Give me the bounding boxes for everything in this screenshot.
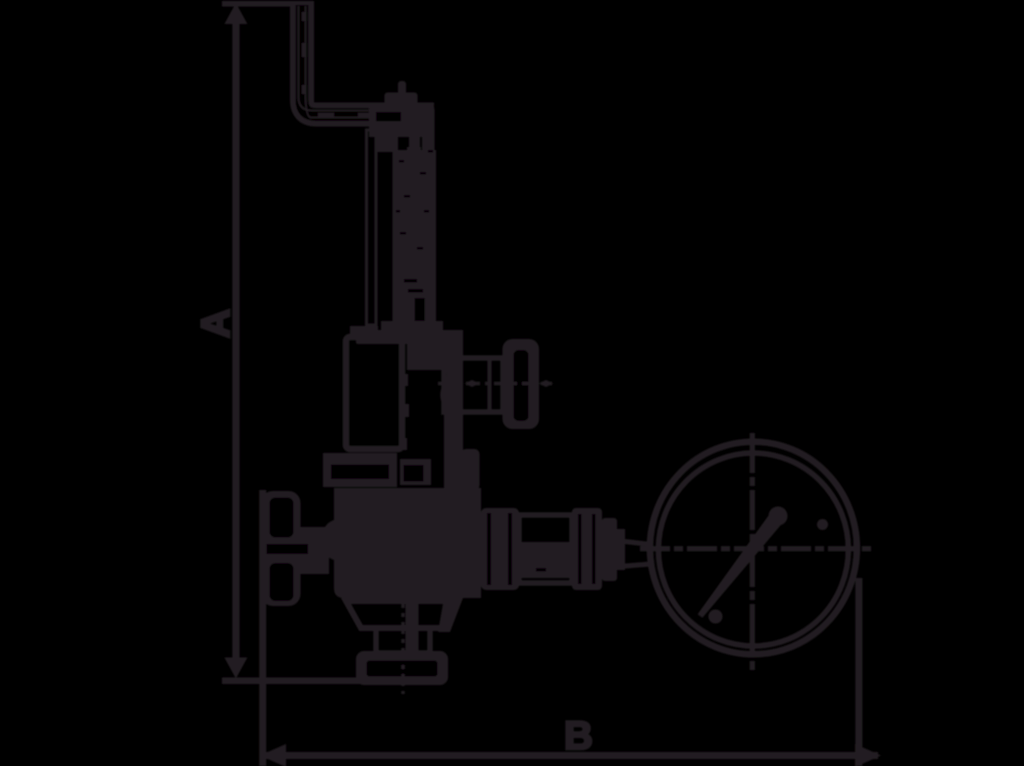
svg-text:B: B bbox=[564, 714, 593, 758]
svg-text:A: A bbox=[194, 309, 238, 338]
